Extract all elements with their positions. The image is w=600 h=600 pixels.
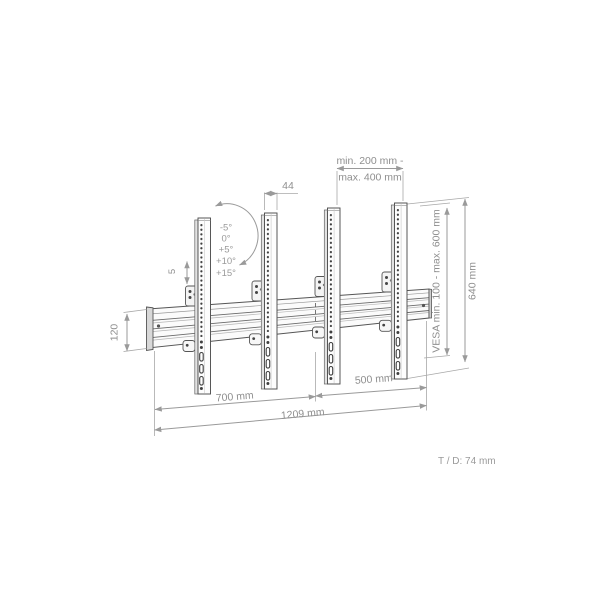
dimension-44-rail-width: 44 <box>265 180 299 210</box>
dimension-rail-spacing: min. 200 mm - max. 400 mm <box>336 155 404 205</box>
dimension-vesa-range: VESA min. 100 - max. 600 mm <box>420 203 450 358</box>
vesa-rail-1 <box>195 218 211 394</box>
wall-hook-rail4 <box>380 320 392 331</box>
dim-label-1209: 1209 mm <box>280 406 325 422</box>
bar-screw-left <box>157 324 160 327</box>
dimension-640mm: 640 mm <box>408 198 479 379</box>
vesa-rail-3 <box>324 208 340 384</box>
wall-hook-rail2 <box>250 334 262 345</box>
tilt-angle-label: -5° <box>220 223 232 234</box>
dim-label-120: 120 <box>109 324 121 342</box>
dim-label-spacing-min: min. 200 mm - <box>336 155 404 167</box>
dimension-700mm: 700 mm <box>155 389 316 409</box>
tilt-indicator: -5° 0° +5° +10° +15° <box>216 204 259 279</box>
dim-label-44: 44 <box>282 180 294 192</box>
dim-label-500: 500 mm <box>354 372 393 387</box>
dimension-120-bar-height: 120 <box>109 310 147 352</box>
tilt-angle-label: +10° <box>216 256 236 267</box>
dimension-5mm-adjust: 5 <box>167 262 187 285</box>
wall-hook-rail1 <box>183 341 195 352</box>
dim-label-spacing-max: max. 400 mm <box>338 172 402 184</box>
dim-label-5: 5 <box>167 269 178 274</box>
tilt-angle-label: +15° <box>216 268 236 279</box>
tilt-angle-label: +5° <box>219 245 234 256</box>
dimension-1209mm: 1209 mm <box>155 406 427 431</box>
diagram-svg: -5° 0° +5° +10° +15° 5 44 min. 200 mm - … <box>0 0 600 600</box>
bar-left-endcap <box>147 307 154 351</box>
vesa-rail-4 <box>391 203 407 379</box>
dim-label-vesa: VESA min. 100 - max. 600 mm <box>431 209 443 353</box>
tilt-angle-label: 0° <box>221 234 230 245</box>
wall-hook-rail3 <box>313 327 325 338</box>
footnote-depth: T / D: 74 mm <box>438 456 496 467</box>
dim-label-640: 640 mm <box>467 262 479 300</box>
vesa-rail-2 <box>261 213 277 389</box>
mount-dimension-diagram: -5° 0° +5° +10° +15° 5 44 min. 200 mm - … <box>0 0 600 600</box>
bar-screw-right <box>422 304 425 307</box>
